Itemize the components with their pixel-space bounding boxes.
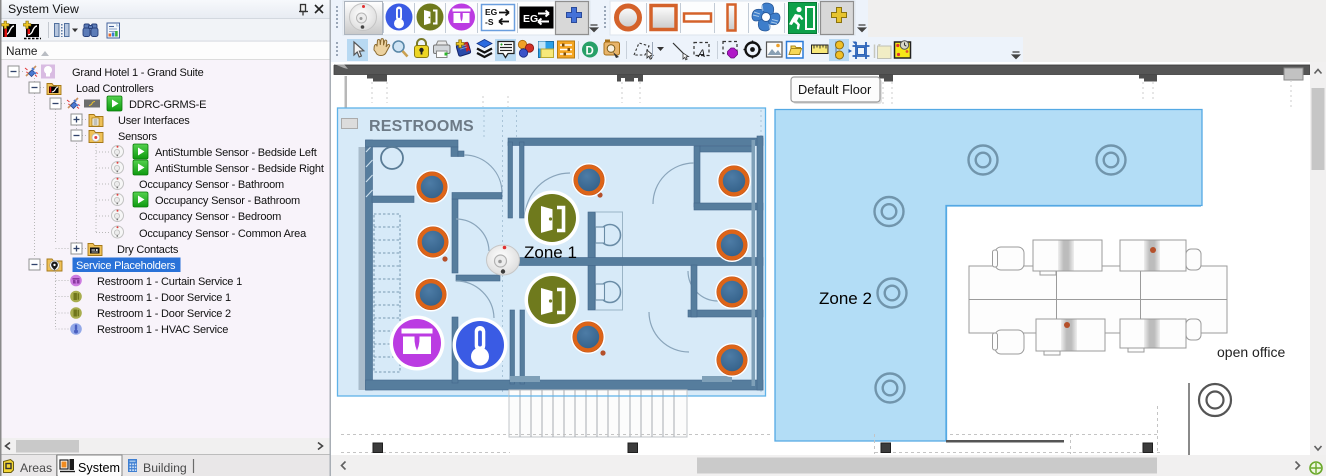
svg-text:Areas: Areas <box>20 461 52 475</box>
svg-text:Name: Name <box>6 44 38 58</box>
svg-text:Occupancy Sensor - Common Area: Occupancy Sensor - Common Area <box>139 228 307 240</box>
svg-text:Restroom 1 - Door Service 1: Restroom 1 - Door Service 1 <box>97 292 231 304</box>
svg-text:Default Floor: Default Floor <box>798 82 872 97</box>
svg-text:open office: open office <box>1217 344 1285 360</box>
svg-text:Zone 1: Zone 1 <box>524 243 577 262</box>
svg-text:Zone 2: Zone 2 <box>819 289 872 308</box>
svg-text:Restroom 1 - Curtain Service 1: Restroom 1 - Curtain Service 1 <box>97 276 242 288</box>
svg-text:A: A <box>697 48 705 60</box>
svg-text:Restroom 1 - Door Service 2: Restroom 1 - Door Service 2 <box>97 308 231 320</box>
svg-text:Grand Hotel 1 - Grand Suite: Grand Hotel 1 - Grand Suite <box>72 67 204 79</box>
svg-text:User Interfaces: User Interfaces <box>118 115 190 127</box>
svg-text:D: D <box>586 46 594 58</box>
svg-text:Occupancy Sensor - Bathroom: Occupancy Sensor - Bathroom <box>139 179 284 191</box>
svg-text:Building: Building <box>143 461 187 475</box>
svg-text:AntiStumble Sensor - Bedside R: AntiStumble Sensor - Bedside Right <box>155 163 324 175</box>
svg-text:Service Placeholders: Service Placeholders <box>76 260 176 272</box>
svg-text:RESTROOMS: RESTROOMS <box>369 118 474 135</box>
svg-text:-S: -S <box>485 17 494 27</box>
svg-text:System: System <box>78 461 120 475</box>
svg-text:Restroom 1 - HVAC Service: Restroom 1 - HVAC Service <box>97 324 228 336</box>
svg-text:EG: EG <box>523 13 538 25</box>
svg-text:Dry Contacts: Dry Contacts <box>117 244 179 256</box>
svg-text:EG: EG <box>485 7 498 17</box>
svg-text:Sensors: Sensors <box>118 131 158 143</box>
svg-text:Occupancy Sensor - Bedroom: Occupancy Sensor - Bedroom <box>139 211 281 223</box>
svg-text:System View: System View <box>8 2 79 16</box>
svg-text:DDRC-GRMS-E: DDRC-GRMS-E <box>129 99 206 111</box>
svg-text:Load Controllers: Load Controllers <box>76 83 154 95</box>
svg-text:Occupancy Sensor - Bathroom: Occupancy Sensor - Bathroom <box>155 195 300 207</box>
svg-text:AntiStumble Sensor - Bedside L: AntiStumble Sensor - Bedside Left <box>155 147 317 159</box>
